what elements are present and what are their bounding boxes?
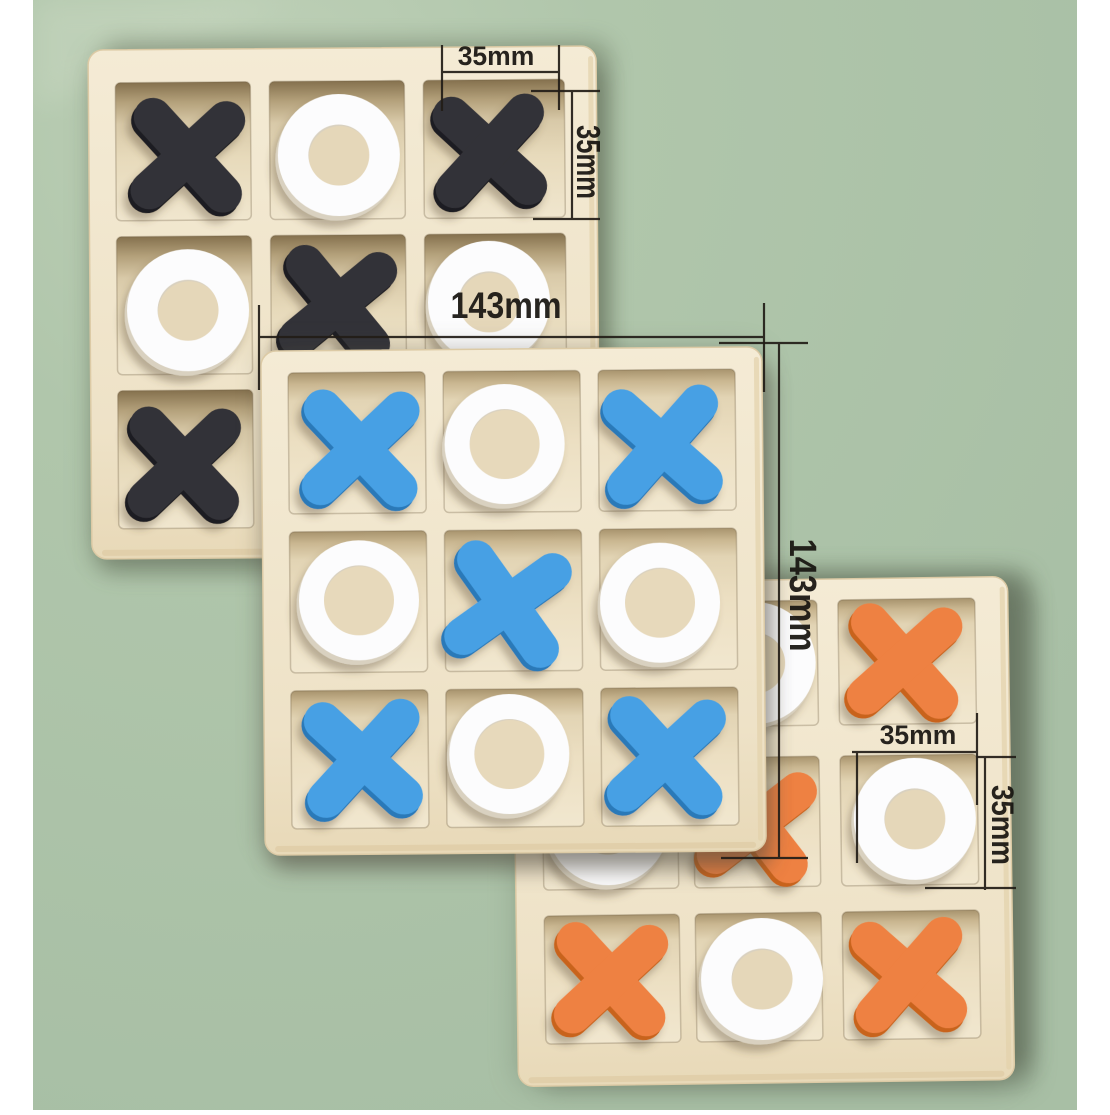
svg-text:35mm: 35mm — [458, 41, 535, 71]
svg-text:35mm: 35mm — [880, 720, 957, 750]
svg-text:143mm: 143mm — [451, 285, 562, 326]
svg-text:35mm: 35mm — [570, 125, 607, 199]
svg-text:143mm: 143mm — [781, 539, 823, 652]
svg-text:35mm: 35mm — [985, 785, 1021, 865]
